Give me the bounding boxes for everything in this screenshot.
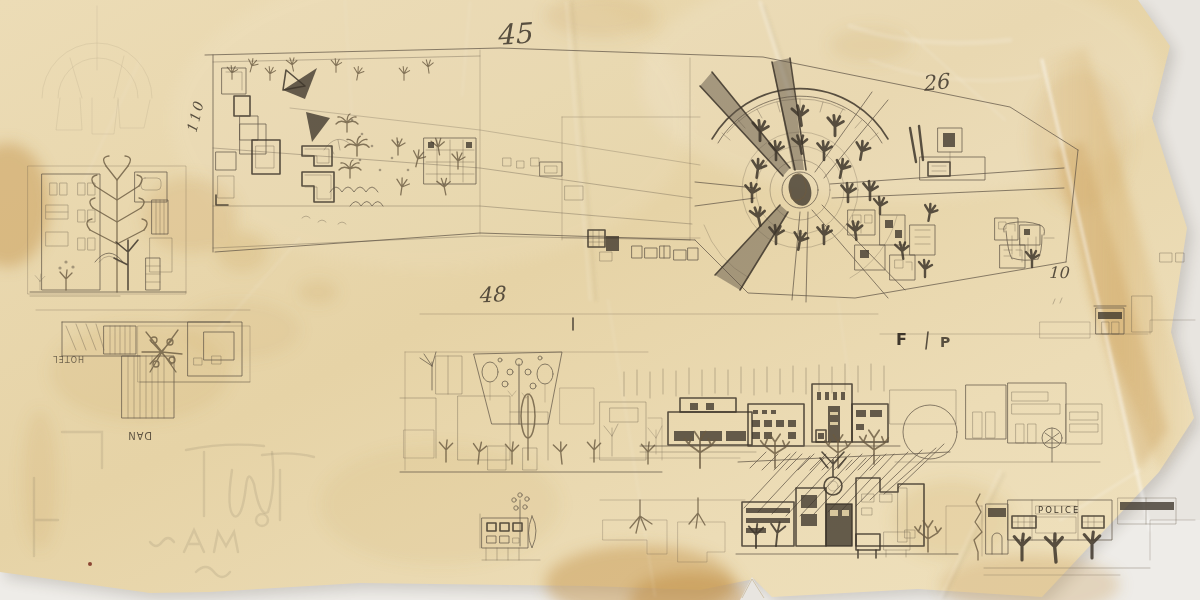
- sketch-photo: 45 26 48 10 110: [0, 0, 1200, 600]
- paper-speck: [88, 562, 92, 566]
- label-hotel: HOTEL: [52, 354, 84, 363]
- label-dan: DAN: [127, 430, 152, 441]
- label-45: 45: [495, 16, 535, 52]
- label-10: 10: [1048, 263, 1070, 282]
- tracing-paper: [0, 0, 1196, 600]
- label-f: F: [896, 330, 907, 349]
- label-26: 26: [921, 69, 952, 96]
- label-p: P: [940, 334, 950, 350]
- photo-stage: 45 26 48 10 110: [0, 0, 1200, 600]
- label-police: POLICE: [1038, 505, 1080, 515]
- label-48: 48: [477, 282, 507, 307]
